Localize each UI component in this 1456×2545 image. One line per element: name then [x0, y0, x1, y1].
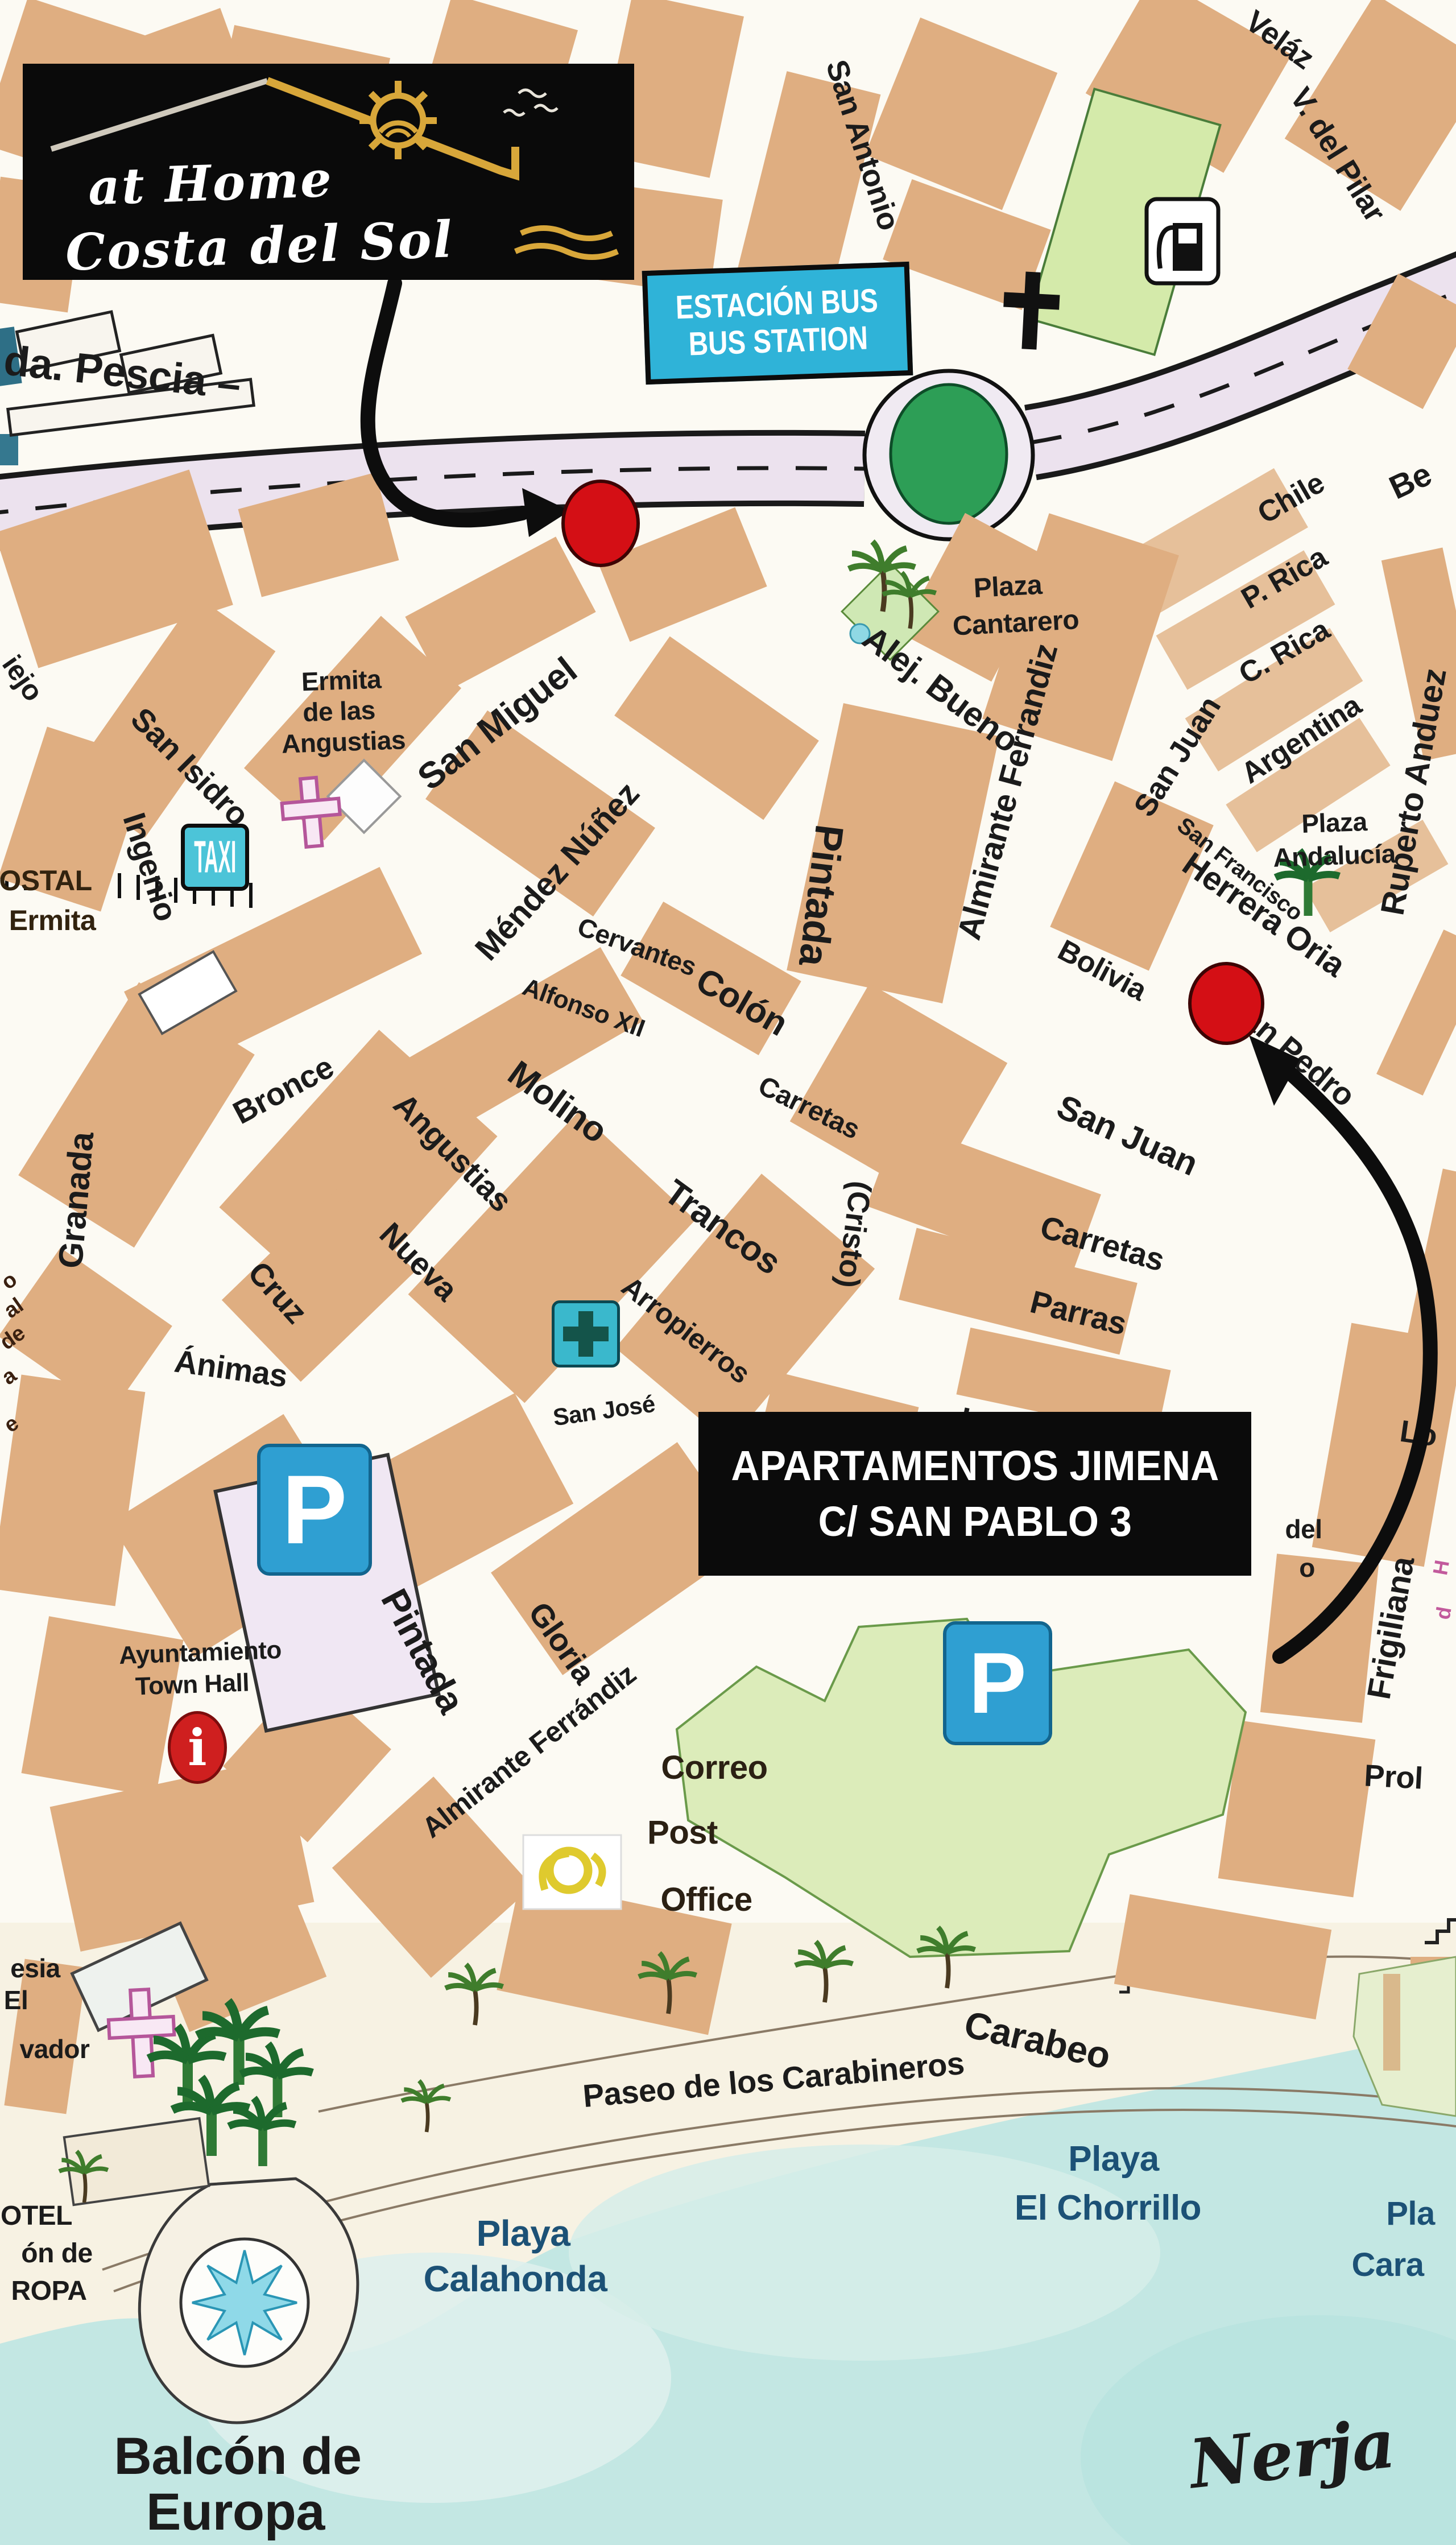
- parking-letter: P: [969, 1634, 1026, 1733]
- apartamentos-jimena-sign: APARTAMENTOS JIMENA C/ SAN PABLO 3: [698, 1412, 1251, 1576]
- info-letter: i: [188, 1718, 206, 1777]
- taxi-sign: TAXI: [181, 824, 249, 891]
- parking-icon-town-hall: P: [257, 1444, 372, 1576]
- at-home-costa-del-sol-logo: at Home Costa del Sol: [23, 64, 634, 280]
- pharmacy-cross-horizontal: [563, 1327, 609, 1341]
- pharmacy-cross-icon: [552, 1300, 620, 1367]
- bus-station-sign: ESTACIÓN BUS BUS STATION: [642, 262, 913, 385]
- waves-icon: [515, 228, 618, 257]
- bus-sign-line2: BUS STATION: [688, 320, 868, 363]
- nerja-street-map: da. Pescia –San AntonioVelázV. del Pilar…: [0, 0, 1456, 2545]
- birds-icon: [504, 90, 557, 115]
- parking-icon-carabeo: P: [943, 1621, 1052, 1745]
- apartment-sign-line2: C/ SAN PABLO 3: [818, 1494, 1131, 1550]
- tourist-info-icon: i: [168, 1711, 227, 1784]
- taxi-sign-label: TAXI: [194, 831, 236, 883]
- sun-icon: [359, 81, 437, 159]
- logo-line1: at Home: [87, 151, 334, 217]
- apartment-sign-line1: APARTAMENTOS JIMENA: [731, 1438, 1219, 1494]
- parking-letter: P: [282, 1453, 348, 1566]
- map-signs: at Home Costa del Sol ESTACIÓN BUS BUS S…: [0, 0, 1456, 2545]
